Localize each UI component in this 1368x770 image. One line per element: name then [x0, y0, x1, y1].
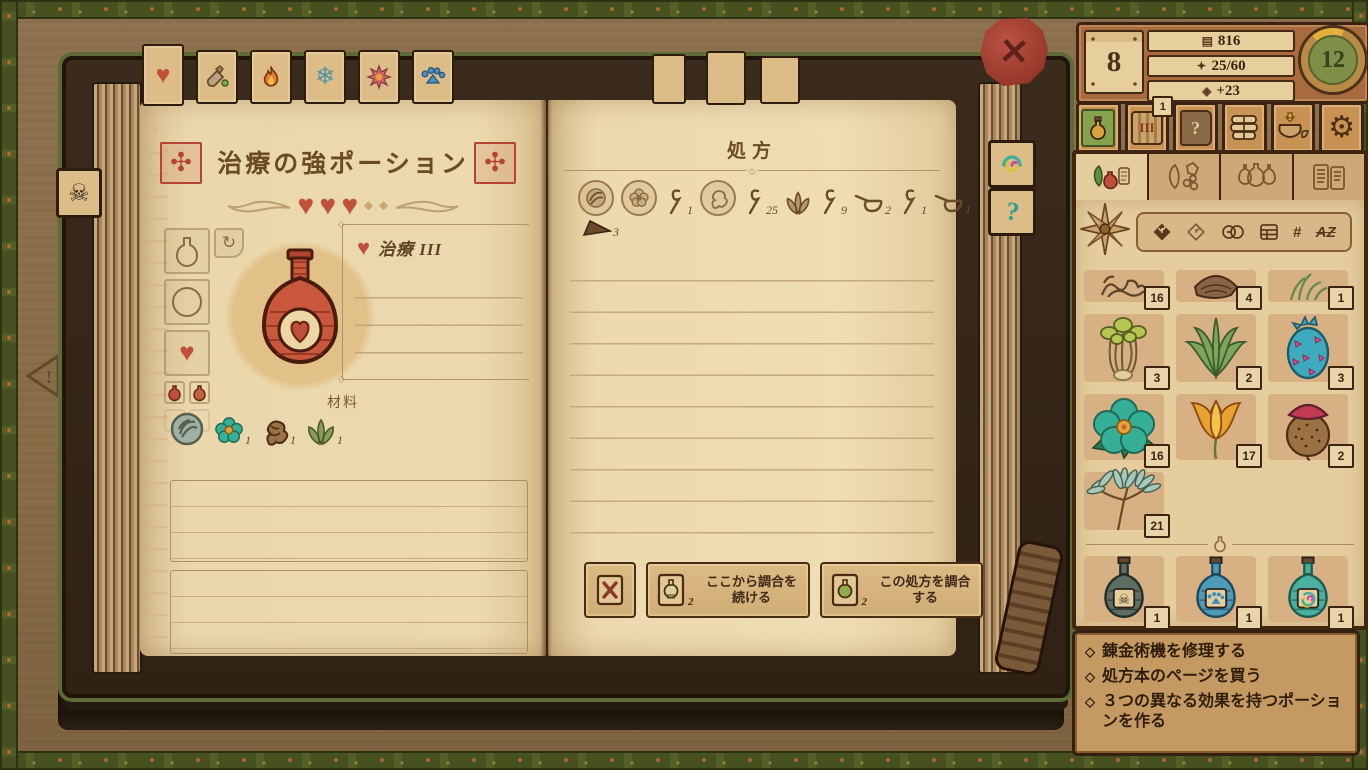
recipe-buttons-row: 2 ここから調合を続ける 2 この処方を調合する [584, 562, 983, 618]
goal-bullet-icon: ◇ [1085, 669, 1095, 690]
tangle-roots-icon [1098, 271, 1150, 301]
step-water [578, 180, 614, 216]
water-icon [170, 412, 204, 446]
ingredient-count: 2 [1236, 366, 1262, 390]
basement-button[interactable]: III 1 [1125, 102, 1170, 154]
sort-alphabetical[interactable]: AZ [1316, 224, 1336, 241]
paw-icon [420, 65, 446, 89]
ingredient-count: 2 [1328, 444, 1354, 468]
ingredients-icon [1165, 162, 1203, 192]
potion-rainbow[interactable]: 1 [1264, 552, 1352, 626]
gear-icon: ⚙ [1328, 113, 1355, 143]
recipe-heading: 処方 [548, 136, 956, 163]
shop-button[interactable] [1076, 102, 1121, 154]
snowflake-icon: ❄ [315, 65, 335, 89]
notes-box-2 [170, 570, 528, 654]
goal-item: ◇ 処方本のページを買う [1085, 667, 1347, 688]
whetstone-icon [582, 218, 612, 238]
ingredient-count: 21 [1144, 514, 1170, 538]
close-icon: ✕ [997, 30, 1030, 74]
ingredient-aloe-leaf[interactable]: 2 [1172, 310, 1260, 386]
goal-item: ◇ 錬金術機を修理する [1085, 642, 1347, 663]
bookmark-explosion[interactable] [358, 50, 400, 104]
bookmark-healing[interactable]: ♥ [142, 44, 184, 106]
inventory-panel: # AZ 16 4 1 [1072, 150, 1368, 630]
materials-row: 1 1 1 [170, 412, 343, 446]
money-icon: ▤ [1202, 34, 1213, 49]
prev-page-arrow[interactable]: ! [20, 350, 64, 407]
heart-icon: ♥ [342, 192, 358, 219]
potion-count: 1 [1328, 606, 1354, 630]
ingredient-count: 3 [1328, 366, 1354, 390]
cauldron-upgrade-button[interactable] [1271, 102, 1316, 154]
stats-panel: 8 ▤ 816 ✦ 25/60 ◈ +23 12 [1076, 22, 1368, 104]
teal-flower-icon [214, 416, 244, 446]
step-count: 1 [687, 203, 693, 218]
step-count: 2 [885, 203, 891, 218]
randomize-bottle-button[interactable]: ↻ [214, 228, 244, 258]
diamond-plant-icon [1152, 222, 1172, 242]
cauldron-upgrade-icon [1276, 112, 1310, 144]
step-herb [785, 190, 811, 216]
effect-ruled-lines [355, 271, 523, 371]
sort-by-number[interactable]: # [1293, 224, 1301, 241]
material-root: 1 [261, 416, 296, 446]
step-count: 9 [841, 203, 847, 218]
stats-column: ▤ 816 ✦ 25/60 ◈ +23 [1147, 30, 1295, 102]
ingredient-red-mushroom[interactable]: 2 [1264, 390, 1352, 464]
bookmark-frost[interactable]: ❄ [304, 50, 346, 104]
left-page: ✣ ✣ 治療の強ポーション ♥ ♥ ♥ ◆ ◆ ♥ [140, 100, 546, 656]
potion-count: 1 [1144, 606, 1170, 630]
leaf-flourish-left [226, 196, 292, 216]
goal-bullet-icon: ◇ [1085, 694, 1095, 736]
ingredient-teal-flower[interactable]: 16 [1080, 390, 1168, 464]
recipes-icon [1311, 162, 1347, 192]
skull-icon: ☠ [68, 179, 90, 208]
heart-icon: ♥ [357, 237, 370, 259]
inventory-body: # AZ 16 4 1 [1076, 200, 1364, 626]
ingredient-star-anise[interactable] [1078, 202, 1132, 261]
heart-icon: ♥ [320, 192, 336, 219]
stir-spoon-icon [664, 188, 686, 216]
circle-label-icon [172, 287, 202, 317]
effect-label: 治療 III [378, 235, 442, 260]
brew-recipe-label: この処方を調合する [877, 574, 973, 607]
delete-recipe-button[interactable] [584, 562, 636, 618]
potion-tier-sub: 2 [688, 596, 694, 610]
potion-tier-sub: 2 [862, 596, 868, 610]
scroll-potion-icon [656, 571, 686, 609]
goals-panel: ◇ 錬金術機を修理する ◇ 処方本のページを買う ◇ ３つの異なる効果を持つポー… [1072, 630, 1360, 756]
step-count: 25 [766, 203, 778, 218]
scroll-stack-icon [1229, 113, 1259, 143]
ingredient-count: 3 [1144, 366, 1170, 390]
stir-spoon-icon [898, 188, 920, 216]
ingredient-count: 4 [1236, 286, 1262, 310]
sidebar: 8 ▤ 816 ✦ 25/60 ◈ +23 12 [1072, 0, 1368, 770]
empty-slot-diamond: ◆ [379, 198, 388, 213]
recipe-scrolls-button[interactable] [1222, 102, 1267, 154]
bookmark-animal[interactable] [412, 50, 454, 104]
ladle-icon [854, 192, 884, 216]
all-items-icon [1091, 162, 1131, 192]
brew-recipe-button[interactable]: 2 この処方を調合する [820, 562, 984, 618]
tab-recipes[interactable] [1294, 154, 1365, 200]
rainbow-spiral-icon [999, 151, 1025, 177]
refresh-icon: ↻ [222, 233, 236, 253]
step-ladle: 2 [854, 192, 891, 216]
empty-slot-diamond: ◆ [364, 198, 373, 213]
step-count: 3 [613, 225, 619, 240]
experience-stat: ✦ 25/60 [1147, 55, 1295, 77]
stir-spoon-icon [743, 188, 765, 216]
popularity-value: +23 [1216, 83, 1240, 100]
toolbar: III 1 ? ⚙ [1076, 102, 1364, 154]
potion-count: 1 [1236, 606, 1262, 630]
material-count: 1 [337, 433, 343, 448]
divider-diamond: ◇ [338, 219, 345, 230]
gem-icon: ◈ [1202, 84, 1211, 99]
flower-icon [628, 187, 650, 209]
potion-poison[interactable]: ☠ 1 [1080, 552, 1168, 626]
talents-button[interactable]: ? [1173, 102, 1218, 154]
heart-icon: ♥ [179, 338, 194, 368]
sort-by-count[interactable] [1259, 223, 1279, 241]
effect-entry-healing[interactable]: ♥ 治療 III [357, 235, 529, 260]
barrel-label: III [1139, 120, 1154, 136]
bookmark-blank[interactable] [706, 51, 746, 105]
rainbow-potion-tab[interactable] [988, 140, 1036, 188]
explosion-icon [367, 65, 391, 89]
sort-by-price[interactable] [1221, 223, 1245, 241]
coins-icon [1221, 223, 1245, 241]
sort-by-effect[interactable] [1186, 222, 1206, 242]
potions-divider [1086, 536, 1354, 552]
effects-panel: ◇ ◇ ♥ 治療 III [342, 224, 529, 380]
level-value: 12 [1321, 47, 1345, 74]
right-page: 処方 ◇ 1 [548, 100, 956, 656]
bottle-shape-option[interactable] [164, 228, 210, 274]
step-count: 1 [921, 203, 927, 218]
material-count: 1 [290, 433, 296, 448]
continue-brewing-label: ここから調合を続ける [704, 574, 800, 607]
title-stamp-left: ✣ [160, 142, 202, 184]
step-ladle: 1 [934, 192, 971, 216]
goal-text: ３つの異なる効果を持つポーションを作る [1102, 692, 1347, 734]
materials-heading: 材料 [140, 392, 546, 412]
basement-badge: 1 [1152, 96, 1173, 117]
step-count: 1 [965, 203, 971, 218]
diamond-plant-outline-icon [1186, 222, 1206, 242]
ingredient-teal-bunch[interactable]: 21 [1080, 468, 1168, 534]
ingredient-count: 17 [1236, 444, 1262, 468]
sort-bar: # AZ [1136, 212, 1352, 252]
inventory-tabs [1076, 154, 1364, 200]
material-herb: 1 [306, 418, 343, 446]
step-root [700, 180, 736, 216]
level-medallion[interactable]: 12 [1301, 28, 1365, 92]
recipe-book: ✣ ✣ 治療の強ポーション ♥ ♥ ♥ ◆ ◆ ♥ [62, 56, 1070, 698]
bookmark-poison[interactable] [196, 50, 238, 104]
step-grind: 3 [582, 218, 619, 238]
potion-animal[interactable]: 1 [1172, 552, 1260, 626]
experience-value: 25/60 [1211, 58, 1245, 75]
ingredient-green-mushrooms[interactable]: 3 [1080, 310, 1168, 386]
goal-text: 錬金術機を修理する [1102, 642, 1246, 663]
potion-bottle-icon [1089, 116, 1107, 140]
recipe-divider: ◇ [564, 170, 940, 171]
tab-potions[interactable] [1221, 154, 1294, 200]
waterbloom-icon [1191, 273, 1241, 299]
water-swirl-icon [585, 187, 607, 209]
label-icon-option[interactable]: ♥ [164, 330, 210, 376]
heart-icon: ♥ [298, 192, 314, 219]
ledger-icon [1259, 223, 1279, 241]
book-spine [540, 100, 552, 656]
unknown-recipe-tab[interactable]: ? [988, 188, 1036, 236]
svg-text:!: ! [46, 367, 52, 387]
ingredient-tangle-roots[interactable]: 16 [1080, 266, 1168, 306]
notes-box-1 [170, 480, 528, 562]
ladle-icon [934, 192, 964, 216]
goal-text: 処方本のページを買う [1102, 667, 1262, 688]
step-stir: 1 [664, 188, 693, 216]
step-stir: 25 [743, 188, 778, 216]
vine-border-left [0, 0, 18, 770]
experience-star-icon: ✦ [1196, 59, 1206, 74]
stir-spoon-icon [818, 188, 840, 216]
dragonfruit-icon [1281, 315, 1335, 381]
small-bottle-icon [1214, 536, 1226, 552]
ingredient-count: 1 [1328, 286, 1354, 310]
rainbow-potion-icon [1282, 555, 1334, 623]
herb-icon [306, 418, 336, 446]
bookmark-blank[interactable] [760, 56, 800, 104]
bookmark-blank[interactable] [652, 54, 686, 104]
step-stir: 1 [898, 188, 927, 216]
green-herb-icon [1285, 270, 1331, 302]
potion-craft-recipe-book-screen: ◇ ◈ ◇ ! ✣ ✣ 治療の強ポーション ♥ ♥ ♥ ◆ ◆ [0, 0, 1368, 770]
ingredient-orange-flower[interactable]: 17 [1172, 390, 1260, 464]
herb-icon [785, 190, 811, 216]
settings-button[interactable]: ⚙ [1319, 102, 1364, 154]
step-stir: 9 [818, 188, 847, 216]
bookmark-fire[interactable] [250, 50, 292, 104]
calendar-day[interactable]: 8 [1084, 30, 1144, 94]
scroll-x-icon [595, 572, 625, 608]
scroll-potion-icon [830, 571, 860, 609]
paw-potion-icon [1190, 555, 1242, 623]
ingredient-count: 16 [1144, 286, 1170, 310]
tab-ingredients[interactable] [1149, 154, 1222, 200]
divider-diamond: ◇ [338, 374, 345, 385]
heart-icon: ♥ [156, 63, 171, 88]
potion-title: 治療の強ポーション [198, 144, 488, 180]
star-anise-icon [1078, 202, 1132, 256]
recipe-steps-row: 1 25 9 2 [578, 180, 971, 216]
question-book-icon: ? [1180, 110, 1212, 146]
ingredient-green-herb[interactable]: 1 [1264, 266, 1352, 306]
healing-potion-bottle [248, 248, 352, 384]
goal-bullet-icon: ◇ [1085, 644, 1095, 665]
divider-diamond: ◇ [747, 166, 758, 177]
ingredient-waterbloom[interactable]: 4 [1172, 266, 1260, 306]
step-flower [621, 180, 657, 216]
ingredient-count: 16 [1144, 444, 1170, 468]
root-icon [261, 416, 289, 446]
flame-icon [260, 64, 282, 91]
ingredient-dragonfruit[interactable]: 3 [1264, 310, 1352, 386]
material-water [170, 412, 204, 446]
day-number: 8 [1107, 46, 1122, 79]
bottle-outline-icon [175, 236, 199, 266]
recipe-ruled-lines [570, 250, 934, 562]
material-count: 1 [245, 433, 251, 448]
poison-page-tab[interactable]: ☠ [56, 168, 102, 218]
potions-icon [1236, 162, 1276, 192]
continue-brewing-button[interactable]: 2 ここから調合を続ける [646, 562, 810, 618]
tab-all[interactable] [1076, 154, 1149, 200]
svg-text:☠: ☠ [1118, 593, 1130, 608]
goal-item: ◇ ３つの異なる効果を持つポーションを作る [1085, 692, 1347, 734]
leaf-flourish-right [394, 196, 460, 216]
material-teal-flower: 1 [214, 416, 251, 446]
poison-potion-icon: ☠ [1098, 555, 1150, 623]
question-icon: ? [1003, 196, 1020, 228]
money-value: 816 [1218, 33, 1241, 50]
label-shape-option[interactable] [164, 279, 210, 325]
potion-rating-row: ♥ ♥ ♥ ◆ ◆ [140, 192, 546, 219]
root-icon [707, 187, 729, 209]
poison-bottle-icon [204, 64, 230, 90]
money-stat: ▤ 816 [1147, 30, 1295, 52]
green-pad [1081, 109, 1115, 147]
sort-by-type-selected[interactable] [1152, 222, 1172, 242]
